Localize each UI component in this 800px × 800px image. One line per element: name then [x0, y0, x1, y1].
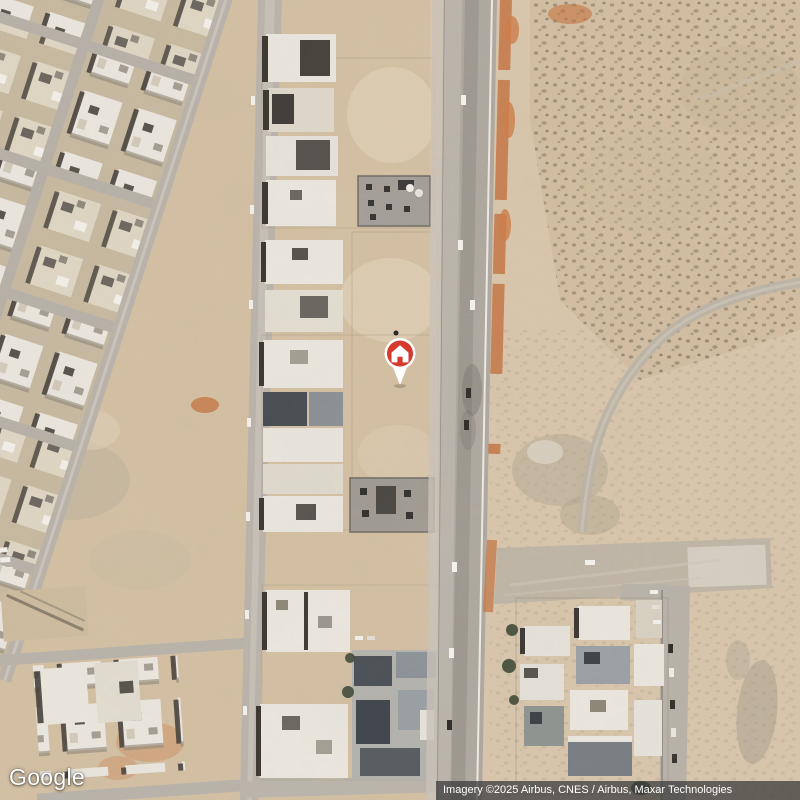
attribution-text: Imagery ©2025 Airbus, CNES / Airbus, Max… [443, 781, 732, 800]
google-logo[interactable]: Google [9, 764, 85, 791]
grain-overlay [0, 0, 800, 800]
satellite-imagery [0, 0, 800, 800]
map-canvas[interactable]: Google Imagery ©2025 Airbus, CNES / Airb… [0, 0, 800, 800]
location-pin[interactable] [378, 334, 422, 390]
home-icon [378, 334, 422, 390]
attribution-bar: Imagery ©2025 Airbus, CNES / Airbus, Max… [436, 781, 800, 800]
